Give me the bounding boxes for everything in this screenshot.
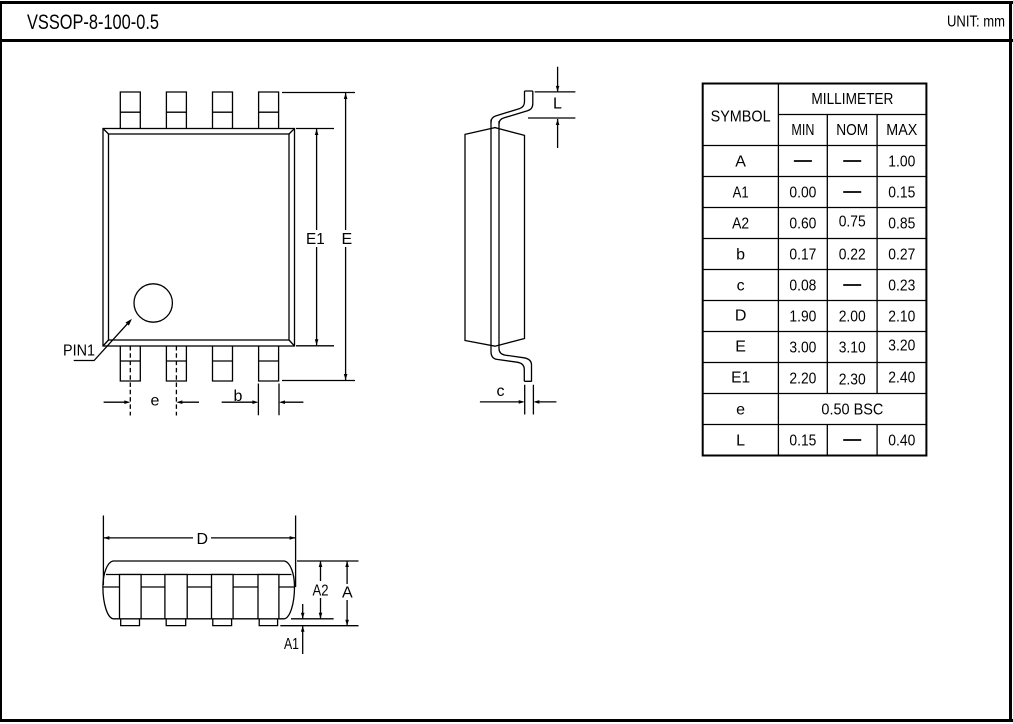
svg-text:E1: E1 bbox=[731, 370, 750, 387]
svg-text:3.10: 3.10 bbox=[839, 340, 866, 357]
svg-text:0.50 BSC: 0.50 BSC bbox=[821, 402, 883, 419]
svg-text:MILLIMETER: MILLIMETER bbox=[811, 91, 893, 108]
svg-text:D: D bbox=[735, 308, 747, 325]
svg-text:L: L bbox=[553, 95, 562, 112]
svg-text:0.23: 0.23 bbox=[888, 278, 915, 295]
svg-text:2.10: 2.10 bbox=[888, 309, 915, 326]
svg-text:NOM: NOM bbox=[836, 122, 868, 139]
svg-text:b: b bbox=[736, 247, 745, 264]
svg-text:0.17: 0.17 bbox=[789, 247, 816, 264]
svg-text:0.08: 0.08 bbox=[789, 278, 816, 295]
svg-text:e: e bbox=[151, 392, 160, 409]
svg-text:0.75: 0.75 bbox=[839, 214, 866, 231]
svg-text:A2: A2 bbox=[732, 216, 749, 233]
svg-text:0.15: 0.15 bbox=[888, 185, 915, 202]
svg-text:2.30: 2.30 bbox=[839, 372, 866, 389]
svg-text:0.85: 0.85 bbox=[888, 216, 915, 233]
svg-text:3.00: 3.00 bbox=[789, 340, 816, 357]
svg-text:c: c bbox=[497, 383, 505, 400]
svg-text:SYMBOL: SYMBOL bbox=[711, 109, 771, 126]
svg-text:PIN1: PIN1 bbox=[63, 343, 95, 360]
svg-text:L: L bbox=[736, 433, 745, 450]
svg-text:e: e bbox=[736, 402, 745, 419]
svg-text:A1: A1 bbox=[284, 636, 299, 653]
svg-text:A2: A2 bbox=[313, 583, 329, 600]
svg-text:VSSOP-8-100-0.5: VSSOP-8-100-0.5 bbox=[27, 11, 159, 34]
svg-text:MIN: MIN bbox=[791, 122, 814, 139]
svg-text:A: A bbox=[342, 585, 353, 602]
svg-text:MAX: MAX bbox=[886, 122, 917, 139]
svg-text:3.20: 3.20 bbox=[888, 338, 915, 355]
svg-text:2.20: 2.20 bbox=[789, 371, 816, 388]
svg-text:1.90: 1.90 bbox=[789, 309, 816, 326]
svg-text:2.00: 2.00 bbox=[839, 309, 866, 326]
svg-text:0.40: 0.40 bbox=[888, 433, 915, 450]
svg-text:0.60: 0.60 bbox=[789, 216, 816, 233]
svg-text:D: D bbox=[197, 531, 209, 548]
svg-text:A: A bbox=[735, 154, 746, 171]
svg-text:c: c bbox=[737, 278, 745, 295]
svg-text:A1: A1 bbox=[733, 185, 749, 202]
svg-text:E: E bbox=[735, 339, 746, 356]
svg-text:E1: E1 bbox=[306, 231, 325, 248]
svg-text:0.15: 0.15 bbox=[789, 433, 816, 450]
svg-text:0.27: 0.27 bbox=[888, 247, 915, 264]
svg-text:0.00: 0.00 bbox=[789, 185, 816, 202]
svg-text:2.40: 2.40 bbox=[888, 370, 915, 387]
svg-text:1.00: 1.00 bbox=[888, 154, 915, 171]
svg-text:b: b bbox=[234, 388, 243, 405]
svg-text:0.22: 0.22 bbox=[839, 247, 866, 264]
svg-text:UNIT: mm: UNIT: mm bbox=[947, 14, 1005, 31]
svg-text:E: E bbox=[342, 231, 353, 248]
